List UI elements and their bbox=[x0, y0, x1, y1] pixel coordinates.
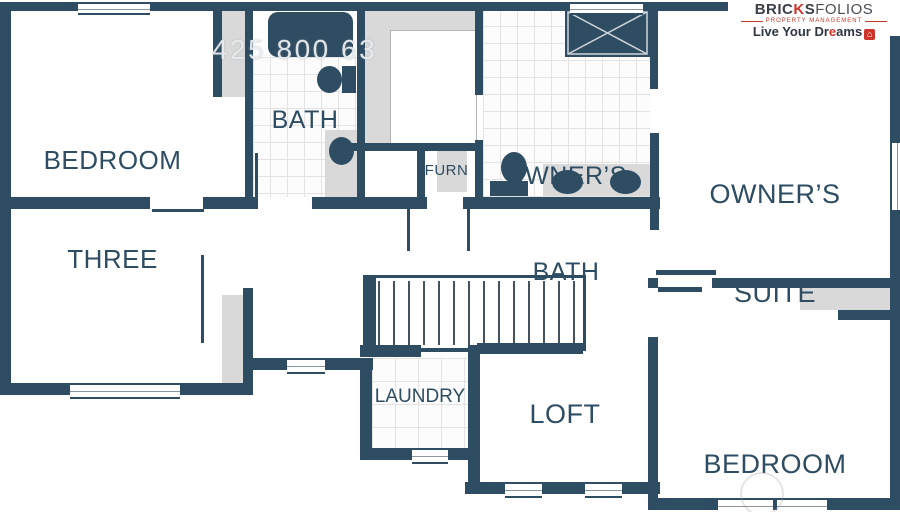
door-swing-line bbox=[255, 153, 258, 199]
window bbox=[890, 143, 900, 210]
window bbox=[505, 482, 542, 498]
bricksfolios-logo: BRICKSFOLIOS PROPERTY MANAGEMENT Live Yo… bbox=[728, 0, 900, 36]
window bbox=[287, 358, 325, 374]
brand-name: BRICKSFOLIOS bbox=[728, 2, 900, 17]
wall-segment bbox=[650, 9, 658, 89]
bedroom-four-closet bbox=[222, 295, 243, 383]
owners-suite-line2: SUITE bbox=[660, 277, 890, 310]
walk-in-closet-inner bbox=[390, 30, 477, 145]
owners-bath-label: OWNER’S BATH bbox=[485, 96, 647, 352]
tagline-part1: Live Your Dr bbox=[753, 24, 829, 39]
wall-segment bbox=[340, 143, 480, 151]
wall-segment bbox=[890, 210, 900, 510]
brand-tagline: Live Your Dreams⌂ bbox=[728, 25, 900, 40]
brand-part1: BRIC bbox=[755, 1, 794, 18]
wall-segment bbox=[360, 358, 372, 460]
owners-bath-line2: BATH bbox=[485, 256, 647, 288]
phone-watermark: 425 800 63 bbox=[212, 34, 377, 66]
owners-suite-label: OWNER’S SUITE bbox=[660, 112, 890, 376]
door-swing-line bbox=[421, 349, 468, 352]
tagline-part2: ams bbox=[836, 24, 862, 39]
wall-segment bbox=[890, 36, 900, 143]
owners-bath-line1: OWNER’S bbox=[485, 160, 647, 192]
door-swing-line bbox=[407, 209, 410, 251]
wall-segment bbox=[312, 197, 427, 209]
window bbox=[412, 448, 448, 464]
wall-segment bbox=[650, 133, 659, 230]
shower bbox=[565, 9, 650, 57]
wall-segment bbox=[243, 288, 253, 395]
subtitle-divider-right bbox=[865, 21, 887, 22]
window bbox=[570, 2, 643, 15]
brand-part2: S bbox=[805, 1, 816, 18]
bedroom-three-line2: THREE bbox=[15, 243, 210, 276]
bath-toilet bbox=[317, 66, 342, 93]
wall-segment bbox=[475, 9, 483, 95]
wall-segment bbox=[203, 197, 258, 209]
bath-sink bbox=[329, 137, 354, 165]
bath-toilet-tank bbox=[342, 66, 356, 93]
window bbox=[585, 482, 622, 498]
house-icon: ⌂ bbox=[864, 29, 875, 40]
bedroom-three-line1: BEDROOM bbox=[15, 144, 210, 177]
wall-segment bbox=[468, 345, 480, 493]
brand-letter-k: K bbox=[793, 1, 804, 18]
wall-segment bbox=[465, 482, 660, 494]
brand-part3: FOLIOS bbox=[815, 1, 873, 18]
window bbox=[70, 383, 180, 399]
loft-label: LOFT bbox=[500, 398, 630, 431]
photographer-watermark-circle bbox=[740, 472, 784, 512]
furnace-label: FURN bbox=[418, 162, 475, 180]
wall-segment bbox=[363, 275, 376, 351]
window bbox=[78, 2, 150, 15]
subtitle-divider-left bbox=[741, 21, 763, 22]
bath-label: BATH bbox=[255, 104, 355, 137]
shower-glass-icon bbox=[565, 9, 650, 57]
owners-suite-line1: OWNER’S bbox=[660, 178, 890, 211]
wall-segment bbox=[648, 278, 658, 288]
bedroom-three-label: BEDROOM THREE bbox=[15, 78, 210, 342]
door-swing-line bbox=[467, 209, 470, 251]
floor-plan: BEDROOM THREE BATH OWNER’S BATH OWNER’S … bbox=[0, 0, 900, 512]
laundry-label: LAUNDRY bbox=[372, 385, 468, 409]
